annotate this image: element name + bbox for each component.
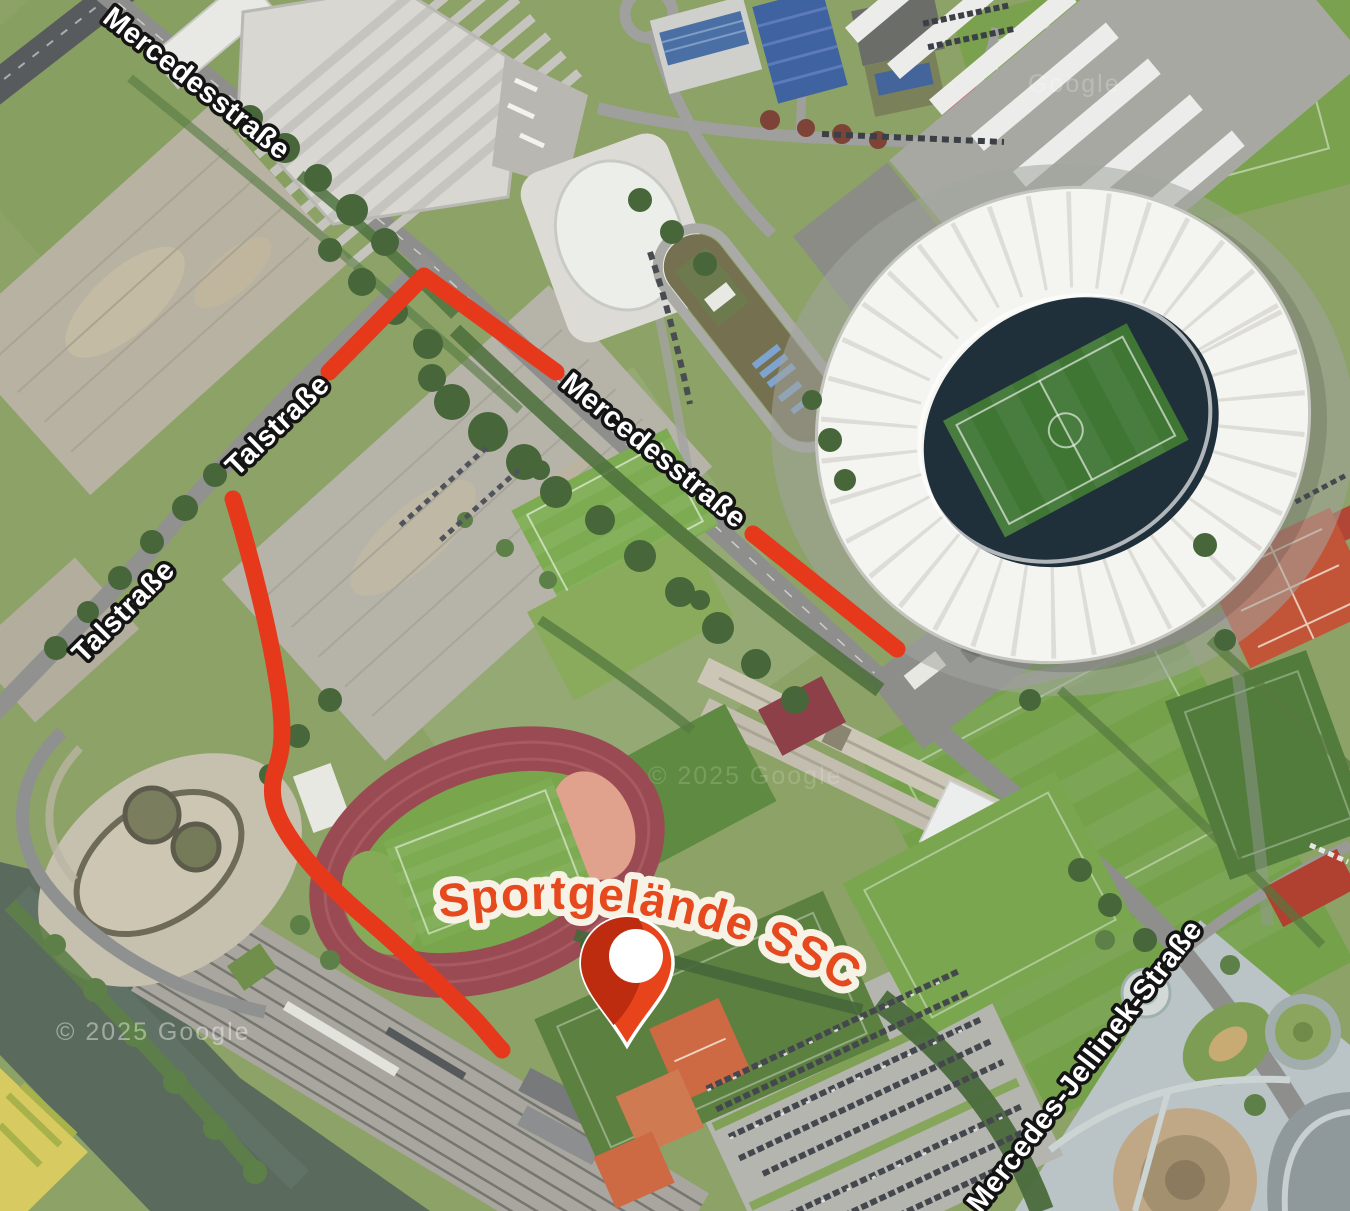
watermark-center: © 2025 Google xyxy=(648,762,843,790)
watermark-bottom-left: © 2025 Google xyxy=(56,1018,251,1046)
pin-inner-circle xyxy=(609,929,663,983)
satellite-map-view[interactable]: © 2025 Google © 2025 Google Google Merce… xyxy=(0,0,1350,1211)
watermark-top-right: Google xyxy=(1028,70,1121,98)
